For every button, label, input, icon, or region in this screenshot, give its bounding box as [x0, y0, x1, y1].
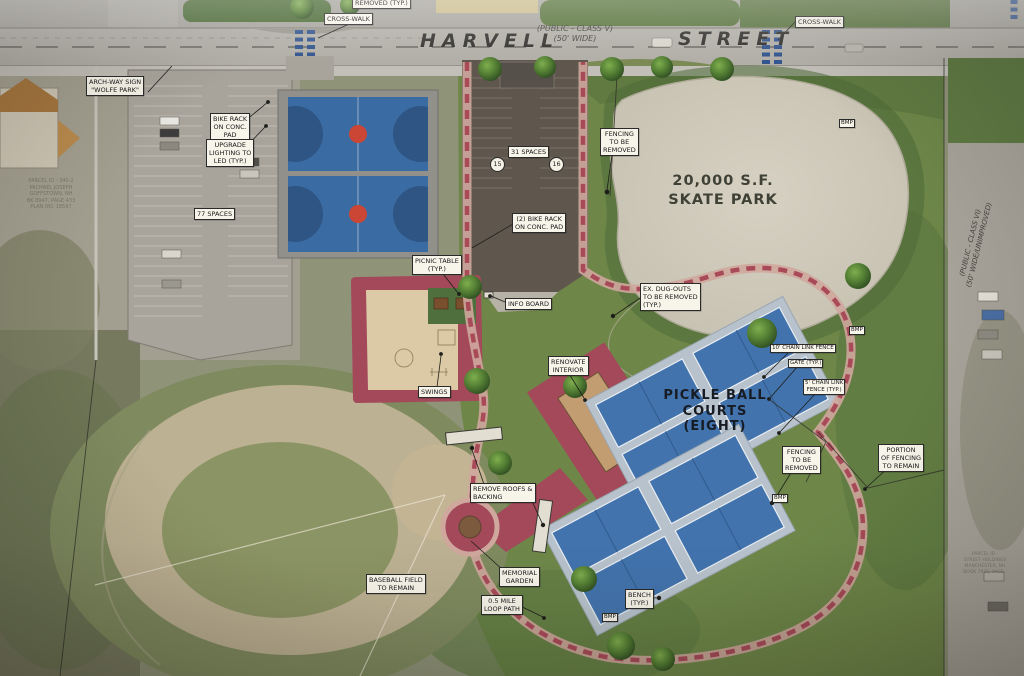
- callout-upgrade-lighting: UPGRADE LIGHTING TO LED (TYP.): [206, 139, 254, 167]
- west-lot-entrance: [286, 56, 334, 80]
- pickleball-label: PICKLE BALL COURTS (EIGHT): [645, 388, 785, 435]
- parcel-text-east: PARCEL ID - STREET HOLDINGS MANCHESTER, …: [948, 552, 1022, 575]
- callout-bike-rack: BIKE RACK ON CONC. PAD: [210, 113, 250, 141]
- baseball-infield-grass: [162, 442, 398, 618]
- callout-bmp-south: BMP: [602, 613, 618, 622]
- site-plan-photo: HARVELL STREET (PUBLIC - CLASS V) (50' W…: [0, 0, 1024, 676]
- street-car: [652, 38, 672, 47]
- picnic-table: [434, 298, 448, 309]
- street-class-note: (PUBLIC - CLASS V) (50' WIDE): [520, 24, 630, 45]
- north-tan-roof: [436, 0, 538, 13]
- callout-fencing-removed-east: FENCING TO BE REMOVED: [782, 446, 821, 474]
- callout-removed-typ: REMOVED (TYP.): [352, 0, 411, 9]
- callout-gate: GATE (TYP.): [788, 359, 823, 368]
- east-green-top: [948, 58, 1024, 143]
- north-green-2: [540, 0, 740, 26]
- callout-archway-sign: ARCH-WAY SIGN "WOLFE PARK": [86, 76, 144, 96]
- callout-chain-link-10: 10' CHAIN LINK FENCE: [770, 344, 836, 353]
- callout-77-spaces: 77 SPACES: [194, 208, 235, 220]
- center-circle-north: [349, 125, 367, 143]
- callout-picnic-table: PICNIC TABLE (TYP.): [412, 255, 462, 275]
- callout-remove-roofs: REMOVE ROOFS & BACKING: [470, 483, 536, 503]
- callout-31-spaces: 31 SPACES: [508, 146, 549, 158]
- memorial-garden-center: [459, 516, 481, 538]
- center-circle-south: [349, 205, 367, 223]
- callout-chain-link-5: 5' CHAIN LINK FENCE (TYP.): [803, 379, 845, 395]
- stall-count-15: 15: [490, 157, 505, 172]
- callout-fencing-removed-north: FENCING TO BE REMOVED: [600, 128, 639, 156]
- callout-crosswalk-right: CROSS-WALK: [795, 16, 844, 28]
- callout-bmp-mid: BMP: [849, 326, 865, 335]
- callout-swings: SWINGS: [418, 386, 451, 398]
- north-side-street: [108, 0, 178, 32]
- stall-count-16: 16: [549, 157, 564, 172]
- callout-bmp-east: BMP: [772, 494, 788, 503]
- callout-loop-path: 0.5 MILE LOOP PATH: [481, 595, 523, 615]
- callout-bike-rack-2: (2) BIKE RACK ON CONC. PAD: [512, 213, 566, 233]
- new-parking-lot: [462, 60, 588, 292]
- street-car: [845, 44, 863, 52]
- callout-renovate-interior: RENOVATE INTERIOR: [548, 356, 589, 376]
- callout-ex-dugouts: EX. DUG-OUTS TO BE REMOVED (TYP.): [640, 283, 701, 311]
- callout-bench: BENCH (TYP.): [625, 589, 654, 609]
- skate-park-label: 20,000 S.F. SKATE PARK: [648, 172, 798, 210]
- north-green-3: [740, 0, 950, 28]
- parcel-text-west: PARCEL ID - 340-2 MICHAEL JOSEPH GOFFSTO…: [6, 178, 96, 211]
- callout-bmp-north: BMP: [839, 119, 855, 128]
- callout-crosswalk-left: CROSS-WALK: [324, 13, 373, 25]
- callout-info-board: INFO BOARD: [505, 298, 552, 310]
- callout-memorial-garden: MEMORIAL GARDEN: [499, 567, 540, 587]
- street-name-street: STREET: [678, 28, 794, 50]
- callout-portion-fencing: PORTION OF FENCING TO REMAIN: [878, 444, 924, 472]
- callout-baseball-field: BASEBALL FIELD TO REMAIN: [366, 574, 426, 594]
